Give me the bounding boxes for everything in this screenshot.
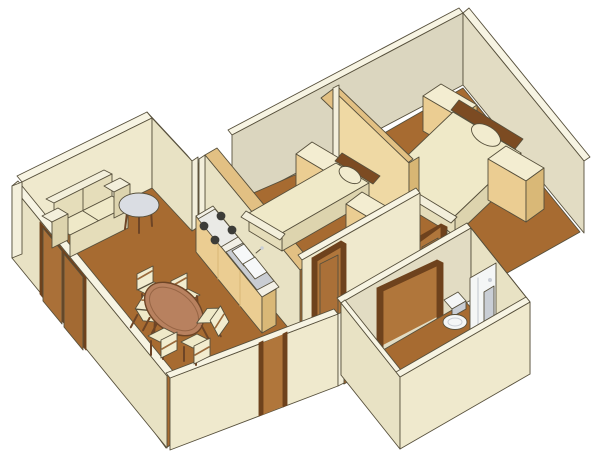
towel-hook <box>488 278 492 282</box>
burner <box>228 226 237 235</box>
door-post-r <box>437 260 443 320</box>
burner <box>217 212 226 221</box>
floor-plan-svg <box>0 0 600 470</box>
floor-plan-image <box>0 0 600 470</box>
se-doorway-post-r <box>283 332 287 407</box>
divider-cap <box>333 85 339 161</box>
round-table-top <box>119 193 159 217</box>
burner <box>211 236 220 245</box>
toilet-bowl <box>443 315 467 330</box>
burner <box>200 222 209 231</box>
faucet <box>260 246 264 250</box>
se-wall-doorway <box>262 334 284 415</box>
w-corner-cap <box>12 182 22 258</box>
se-doorway-post-l <box>259 341 263 416</box>
